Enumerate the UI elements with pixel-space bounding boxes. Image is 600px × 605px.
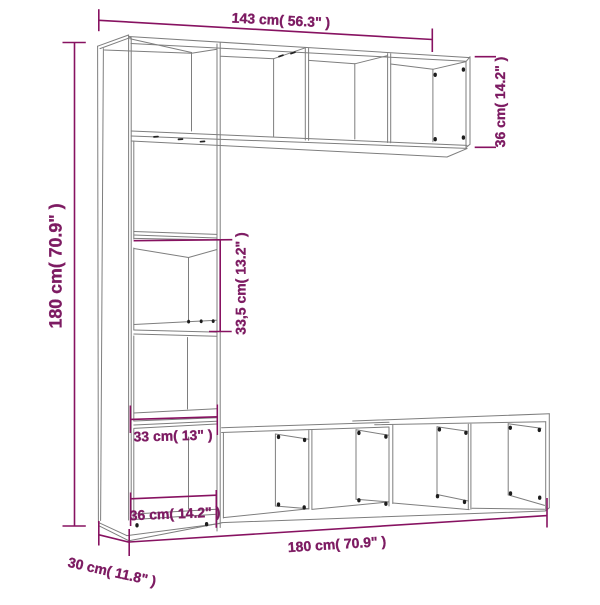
svg-text:33,5 cm( 13.2" ): 33,5 cm( 13.2" ) [233, 232, 249, 334]
svg-text:36 cm( 14.2" ): 36 cm( 14.2" ) [492, 57, 508, 148]
svg-text:180 cm( 70.9" ): 180 cm( 70.9" ) [46, 203, 66, 328]
svg-text:33 cm( 13" ): 33 cm( 13" ) [133, 426, 212, 444]
